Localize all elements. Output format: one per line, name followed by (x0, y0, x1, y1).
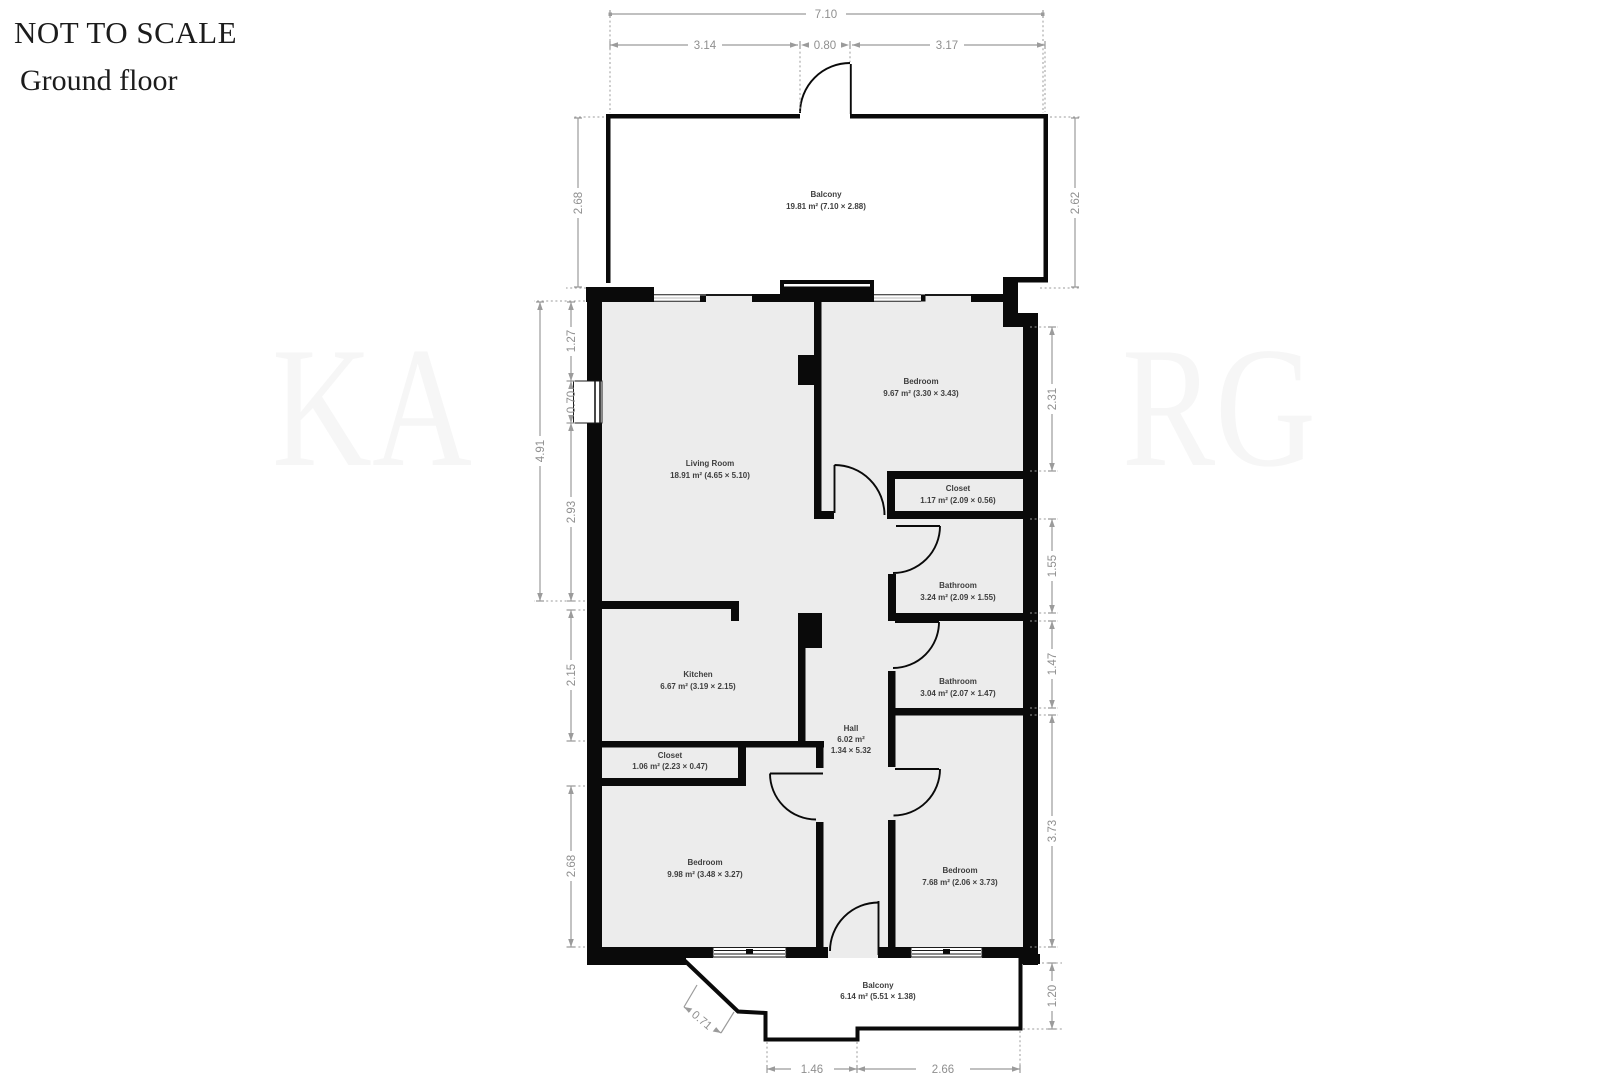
svg-text:Balcony: Balcony (862, 981, 894, 990)
svg-text:Balcony: Balcony (810, 190, 842, 199)
svg-text:3.04 m² (2.07 × 1.47): 3.04 m² (2.07 × 1.47) (920, 689, 996, 698)
svg-text:9.67 m² (3.30 × 3.43): 9.67 m² (3.30 × 3.43) (883, 389, 959, 398)
svg-text:NOT TO SCALE: NOT TO SCALE (14, 15, 237, 50)
svg-text:6.02 m²: 6.02 m² (837, 735, 865, 744)
svg-text:3.73: 3.73 (1047, 820, 1059, 842)
svg-text:RG: RG (1122, 313, 1316, 503)
svg-text:19.81 m² (7.10 × 2.88): 19.81 m² (7.10 × 2.88) (786, 202, 866, 211)
svg-text:4.91: 4.91 (535, 440, 547, 462)
svg-text:Bedroom: Bedroom (687, 858, 722, 867)
svg-text:2.68: 2.68 (566, 855, 578, 877)
svg-text:2.31: 2.31 (1047, 388, 1059, 410)
svg-text:3.14: 3.14 (694, 40, 717, 52)
svg-text:0.80: 0.80 (814, 40, 836, 52)
svg-text:2.62: 2.62 (1070, 192, 1082, 214)
svg-text:Closet: Closet (946, 484, 971, 493)
svg-text:Ground floor: Ground floor (20, 64, 177, 97)
svg-text:1.34 × 5.32: 1.34 × 5.32 (831, 746, 872, 755)
svg-text:1.27: 1.27 (566, 330, 578, 352)
svg-text:7.68 m² (2.06 × 3.73): 7.68 m² (2.06 × 3.73) (922, 878, 998, 887)
svg-text:Kitchen: Kitchen (683, 670, 712, 679)
svg-text:Bedroom: Bedroom (942, 866, 977, 875)
svg-text:0.70: 0.70 (566, 391, 578, 413)
svg-text:2.15: 2.15 (566, 664, 578, 686)
svg-text:2.66: 2.66 (932, 1064, 954, 1076)
svg-text:Bathroom: Bathroom (939, 677, 977, 686)
svg-text:9.98 m² (3.48 × 3.27): 9.98 m² (3.48 × 3.27) (667, 870, 743, 879)
svg-text:Living Room: Living Room (686, 459, 734, 468)
svg-text:1.46: 1.46 (801, 1064, 823, 1076)
svg-text:Closet: Closet (658, 751, 683, 760)
svg-text:18.91 m² (4.65 × 5.10): 18.91 m² (4.65 × 5.10) (670, 471, 750, 480)
svg-text:1.20: 1.20 (1047, 985, 1059, 1007)
svg-text:1.55: 1.55 (1047, 555, 1059, 577)
svg-text:Hall: Hall (844, 724, 859, 733)
svg-text:Bathroom: Bathroom (939, 581, 977, 590)
svg-text:Bedroom: Bedroom (903, 377, 938, 386)
svg-text:7.10: 7.10 (815, 9, 837, 21)
svg-text:1.06 m² (2.23 × 0.47): 1.06 m² (2.23 × 0.47) (632, 762, 708, 771)
svg-text:6.14 m² (5.51 × 1.38): 6.14 m² (5.51 × 1.38) (840, 992, 916, 1001)
svg-text:KA: KA (272, 313, 472, 503)
svg-text:1.17 m² (2.09 × 0.56): 1.17 m² (2.09 × 0.56) (920, 496, 996, 505)
svg-text:3.17: 3.17 (936, 40, 958, 52)
svg-text:6.67 m² (3.19 × 2.15): 6.67 m² (3.19 × 2.15) (660, 682, 736, 691)
svg-text:3.24 m² (2.09 × 1.55): 3.24 m² (2.09 × 1.55) (920, 593, 996, 602)
svg-text:1.47: 1.47 (1047, 653, 1059, 675)
svg-text:2.93: 2.93 (566, 501, 578, 523)
svg-text:2.68: 2.68 (573, 192, 585, 214)
